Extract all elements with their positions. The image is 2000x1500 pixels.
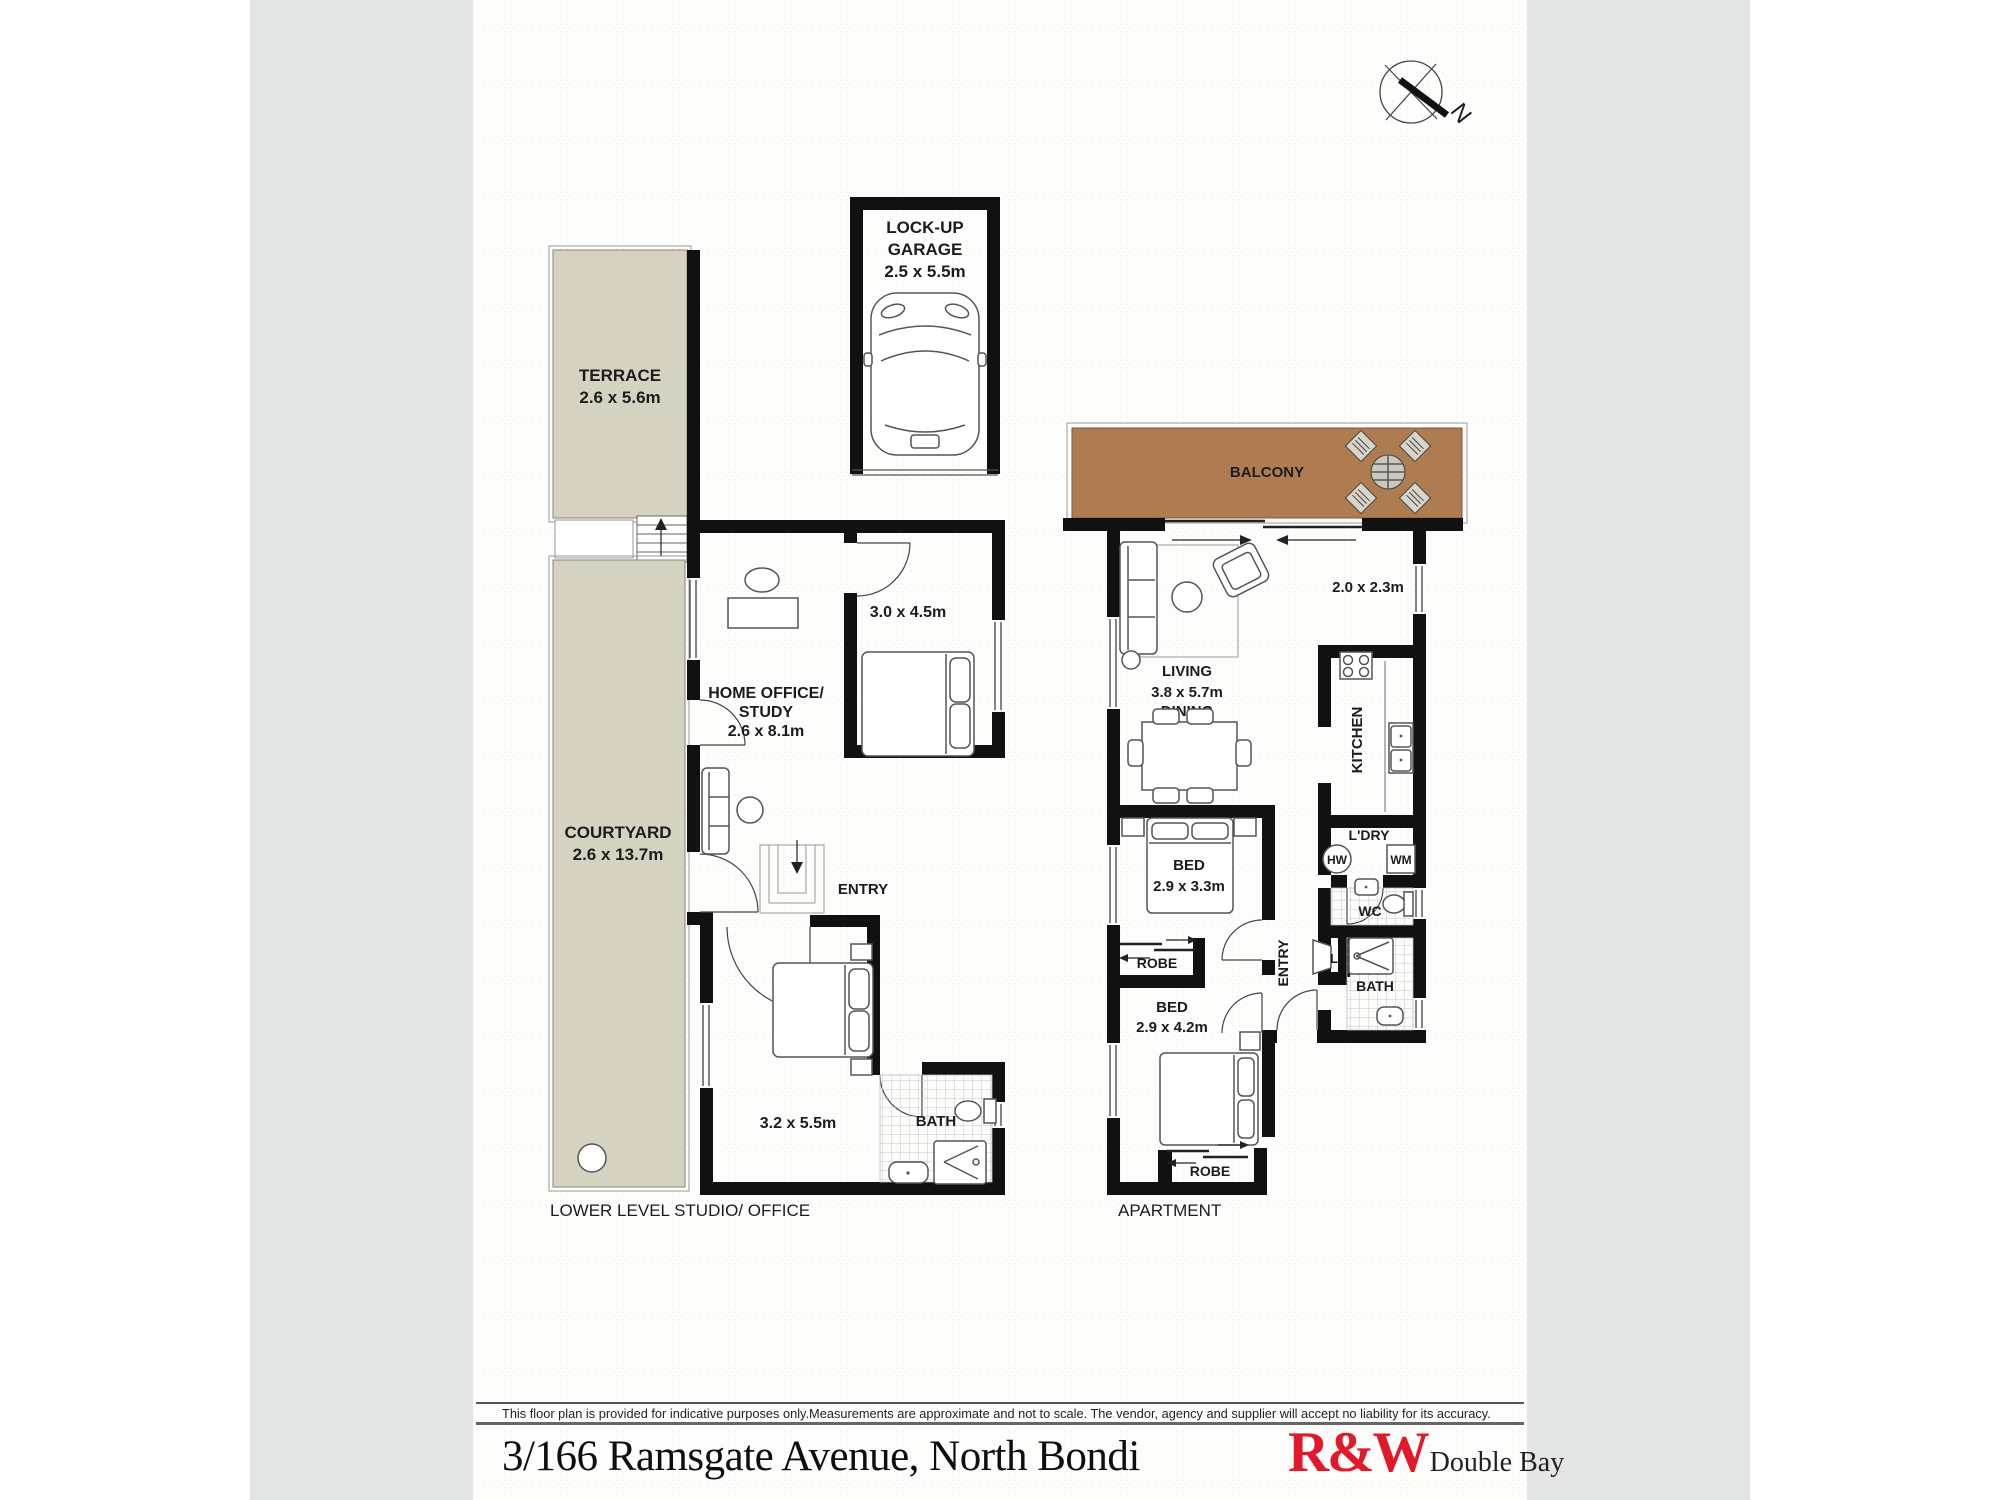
linen-door-icon	[1313, 940, 1331, 974]
home-office-label-1: HOME OFFICE/	[708, 685, 824, 702]
bedside-table-icon	[1240, 1032, 1260, 1050]
courtyard: COURTYARD 2.6 x 13.7m	[549, 556, 689, 1191]
lower-bath-label: BATH	[916, 1113, 957, 1130]
garage-label-1: LOCK-UP	[886, 218, 963, 237]
terrace: TERRACE 2.6 x 5.6m	[549, 246, 691, 522]
toilet-icon	[955, 1099, 996, 1123]
lower-bedroom-lower-dims: 3.2 x 5.5m	[760, 1115, 837, 1132]
double-bed-icon	[862, 652, 974, 756]
living-dims: 3.8 x 5.7m	[1151, 684, 1223, 701]
nook-dims: 2.0 x 2.3m	[1332, 579, 1404, 596]
lower-entry-label: ENTRY	[838, 881, 888, 898]
lower-bedroom-lower: 3.2 x 5.5m	[760, 944, 873, 1132]
footer-rule-top	[476, 1402, 1524, 1404]
lower-bath: BATH	[880, 1075, 996, 1184]
bedside-table-icon	[851, 1059, 872, 1075]
sink-icon	[1355, 879, 1378, 895]
hot-water-icon: HW	[1323, 845, 1351, 873]
robe2: ROBE	[1167, 1141, 1249, 1179]
stove-icon	[1340, 652, 1372, 679]
coffee-table-icon	[1172, 582, 1202, 612]
garage: LOCK-UP GARAGE 2.5 x 5.5m	[850, 197, 1000, 475]
linen-closet: L	[1313, 940, 1338, 974]
agency-office: Double Bay	[1430, 1447, 1565, 1479]
kitchen-sink-icon	[1389, 723, 1413, 773]
lower-bedroom-upper: 3.0 x 4.5m	[862, 604, 974, 756]
living-label: LIVING	[1162, 663, 1212, 680]
bed2-label: BED	[1156, 999, 1188, 1016]
desk-icon	[728, 568, 798, 628]
robe1-label: ROBE	[1137, 955, 1177, 971]
lower-bedroom-upper-dims: 3.0 x 4.5m	[870, 604, 947, 621]
office-chair-icon	[745, 568, 779, 592]
compass-icon: N	[1380, 61, 1477, 129]
kitchen-label: KITCHEN	[1349, 707, 1366, 774]
lower-level-caption: LOWER LEVEL STUDIO/ OFFICE	[550, 1201, 810, 1220]
sofa-icon	[702, 768, 763, 854]
wc-label: WC	[1358, 903, 1381, 919]
laundry-label: L'DRY	[1349, 827, 1391, 843]
terrace-stairs-icon	[555, 516, 687, 562]
sink-icon	[1377, 1007, 1403, 1025]
disclaimer-text: This floor plan is provided for indicati…	[502, 1406, 1532, 1421]
linen-label: L	[1330, 951, 1338, 966]
car-icon	[864, 293, 986, 455]
robe1: ROBE	[1119, 936, 1197, 971]
washing-machine-label: WM	[1390, 853, 1411, 867]
garage-label-2: GARAGE	[888, 240, 963, 259]
balcony-label: BALCONY	[1230, 464, 1304, 481]
bedside-table-icon	[851, 944, 872, 960]
bedside-table-icon	[1122, 818, 1144, 836]
robe2-label: ROBE	[1190, 1163, 1230, 1179]
apartment-caption: APARTMENT	[1118, 1201, 1221, 1220]
side-table-icon	[737, 797, 763, 823]
courtyard-planter-icon	[578, 1144, 606, 1172]
bed1-label: BED	[1173, 857, 1205, 874]
sofa-icon	[1120, 542, 1157, 654]
apartment-entry-label: ENTRY	[1275, 939, 1291, 987]
kitchen: KITCHEN	[1340, 652, 1413, 812]
bed1-dims: 2.9 x 3.3m	[1153, 878, 1225, 895]
apartment-bed2: BED 2.9 x 4.2m	[1136, 999, 1260, 1145]
courtyard-dims: 2.6 x 13.7m	[573, 845, 664, 864]
side-table-icon	[1122, 651, 1140, 669]
double-bed-icon	[1160, 1032, 1260, 1145]
washing-machine-icon: WM	[1387, 845, 1415, 873]
home-office-dims: 2.6 x 8.1m	[728, 723, 805, 740]
agency-logo: R&W Double Bay	[1288, 1424, 1564, 1481]
dining-table-icon	[1128, 709, 1251, 803]
home-office: HOME OFFICE/ STUDY 2.6 x 8.1m	[702, 568, 824, 854]
property-address: 3/166 Ramsgate Avenue, North Bondi	[502, 1432, 1140, 1481]
agency-brand: R&W	[1288, 1424, 1428, 1481]
terrace-label: TERRACE	[579, 366, 661, 385]
sink-icon	[889, 1162, 928, 1183]
floorplan-canvas: N LOCK-UP GARAGE 2.5 x 5.5m TERRACE 2.6 …	[0, 0, 2000, 1500]
double-bed-icon	[773, 944, 873, 1075]
apartment-bath: BATH	[1347, 938, 1413, 1030]
hot-water-label: HW	[1327, 853, 1348, 867]
lower-entry: ENTRY	[760, 840, 888, 913]
entry-steps-icon	[760, 840, 824, 913]
laundry: L'DRY HW WM	[1323, 827, 1415, 873]
bed2-dims: 2.9 x 4.2m	[1136, 1019, 1208, 1036]
bedside-table-icon	[1234, 818, 1256, 836]
apartment-bed1: BED 2.9 x 3.3m	[1122, 818, 1256, 913]
bath-label: BATH	[1356, 978, 1394, 994]
terrace-dims: 2.6 x 5.6m	[579, 388, 660, 407]
shower-icon	[1349, 938, 1393, 974]
home-office-label-2: STUDY	[739, 704, 794, 721]
courtyard-label: COURTYARD	[564, 823, 671, 842]
armchair-icon	[1211, 541, 1271, 599]
shower-icon	[934, 1141, 986, 1184]
balcony: BALCONY	[1067, 423, 1467, 523]
compass-north-label: N	[1445, 98, 1477, 128]
garage-dims: 2.5 x 5.5m	[884, 262, 965, 281]
